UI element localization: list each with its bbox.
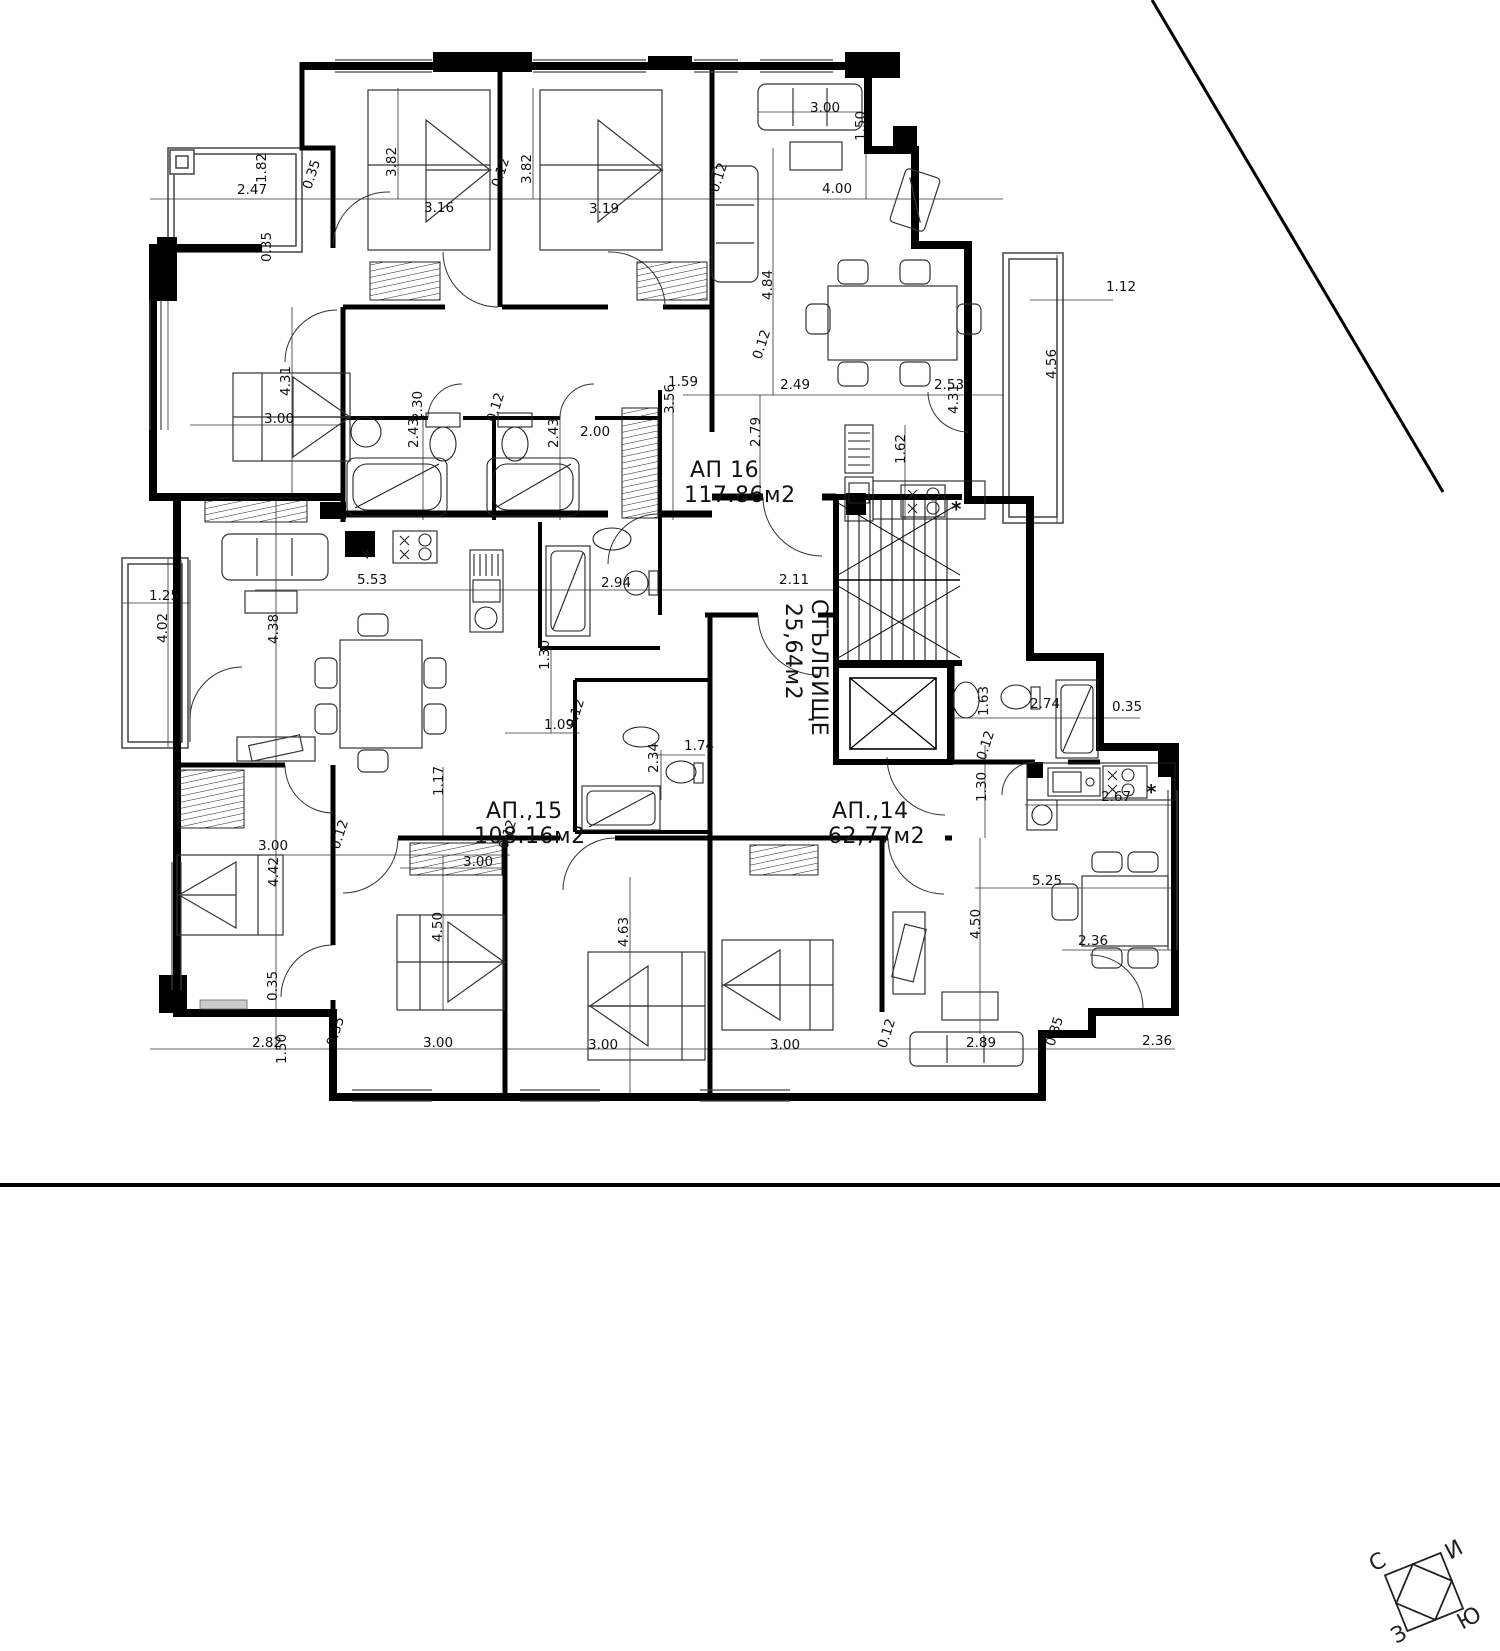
dining-table-6 <box>806 260 981 386</box>
comp-label: Ю <box>1453 1602 1486 1635</box>
dim-label: 0.12 <box>564 697 589 731</box>
dim-label: 3.00 <box>423 1035 453 1051</box>
dim-label: 4.02 <box>155 613 171 643</box>
bed <box>722 940 833 1030</box>
sym-label: * <box>1146 780 1157 804</box>
dim-label: 2.43 <box>406 418 422 448</box>
toilet <box>426 413 460 461</box>
dim-label: 1.74 <box>684 738 714 754</box>
dim-label: 2.36 <box>1078 933 1108 949</box>
sym-label: * <box>951 497 962 521</box>
compass-rose <box>1385 1553 1463 1631</box>
dim-label: 1.82 <box>254 153 270 183</box>
bed <box>540 90 662 250</box>
dim-label: 4.56 <box>1044 349 1060 379</box>
dim-label: 4.50 <box>968 909 984 939</box>
floor-plan-canvas: АП 16117.86м2АП.,15108.16м2АП.,1462,77м2… <box>0 0 1500 1651</box>
dim-label: 4.42 <box>266 857 282 887</box>
dim-label: 1.12 <box>1106 279 1136 295</box>
dim-label: 4.63 <box>616 917 632 947</box>
dim-label: 3.00 <box>264 411 294 427</box>
dim-label: 3.82 <box>519 154 535 184</box>
room-label: АП.,14 <box>832 799 909 824</box>
dim-label: 2.34 <box>646 743 662 773</box>
dim-label: 5.53 <box>357 572 387 588</box>
coffee-table <box>790 142 842 170</box>
dim-label: 2.89 <box>966 1035 996 1051</box>
bed <box>397 915 504 1010</box>
room-label: 25,64м2 <box>780 603 805 700</box>
coffee-table <box>245 591 297 613</box>
dim-label: 1.17 <box>431 766 447 796</box>
wall-columns <box>157 52 1175 1013</box>
dim-label: 0.12 <box>489 156 514 190</box>
dim-label: 0.35 <box>265 971 281 1001</box>
dim-label: 4.84 <box>760 270 776 300</box>
dim-label: 2.11 <box>779 572 809 588</box>
dim-label: 3.00 <box>588 1037 618 1053</box>
dining-table-4 <box>1052 852 1168 968</box>
tv-unit <box>892 912 926 994</box>
dim-label: 2.49 <box>780 377 810 393</box>
shower <box>582 786 660 830</box>
room-label: АП 16 <box>690 458 759 483</box>
comp-label: И <box>1441 1535 1467 1565</box>
bathtub <box>487 458 579 516</box>
dim-label: 5.25 <box>1032 873 1062 889</box>
dim-label: 3.56 <box>662 384 678 414</box>
dim-label: 2.36 <box>1142 1033 1172 1049</box>
dim-label: 1.25 <box>149 588 179 604</box>
sofa <box>222 534 328 580</box>
dim-label: 0.35 <box>324 1015 349 1049</box>
dim-label: 0.12 <box>974 729 999 763</box>
floor-plan-page: АП 16117.86м2АП.,15108.16м2АП.,1462,77м2… <box>0 0 1500 1651</box>
sym-label: * <box>362 545 373 569</box>
room-label: СТЪЛБИЩЕ <box>806 599 831 736</box>
toilet <box>498 413 532 461</box>
room-label: 117.86м2 <box>684 483 796 508</box>
sink <box>593 528 631 550</box>
dim-label: 1.63 <box>976 686 992 716</box>
dim-label: 2.79 <box>748 417 764 447</box>
room-label: 108.16м2 <box>474 824 586 849</box>
dining-table-6 <box>315 614 446 772</box>
dim-label: 2.67 <box>1101 789 1131 805</box>
dim-label: 2.47 <box>237 182 267 198</box>
shower <box>1056 680 1098 758</box>
site-boundary-line <box>1152 0 1443 492</box>
room-label: 62,77м2 <box>828 824 925 849</box>
dim-label: 4.31 <box>946 384 962 414</box>
dim-label: 2.43 <box>546 418 562 448</box>
dim-label: 0.12 <box>750 328 775 362</box>
dim-label: 0.12 <box>875 1017 900 1051</box>
bathtub <box>347 458 447 516</box>
dim-label: 2.74 <box>1030 696 1060 712</box>
dim-label: 2.94 <box>601 575 631 591</box>
dim-label: 3.16 <box>424 200 454 216</box>
dim-label: 1.30 <box>974 772 990 802</box>
dim-label: 3.19 <box>589 201 619 217</box>
staircase <box>838 499 960 661</box>
dim-label: 3.82 <box>384 147 400 177</box>
elevator <box>836 665 950 762</box>
dim-label: 0.35 <box>1112 699 1142 715</box>
toilet <box>666 761 703 783</box>
dim-label: 0.35 <box>300 158 325 192</box>
coffee-table <box>942 992 998 1020</box>
dim-label: 3.00 <box>258 838 288 854</box>
dim-label: 2.30 <box>410 391 426 421</box>
sink <box>351 417 381 447</box>
shower <box>546 546 590 636</box>
comp-label: З <box>1387 1621 1411 1650</box>
dim-label: 4.50 <box>430 912 446 942</box>
dim-label: 3.00 <box>770 1037 800 1053</box>
dim-label: 1.50 <box>274 1034 290 1064</box>
dim-label: 4.00 <box>822 181 852 197</box>
dim-label: 1.30 <box>537 640 553 670</box>
window-sill <box>200 1000 247 1009</box>
dim-label: 0.35 <box>259 232 275 262</box>
dim-label: 4.38 <box>266 614 282 644</box>
room-label: АП.,15 <box>486 799 563 824</box>
dim-label: 3.00 <box>463 854 493 870</box>
comp-label: С <box>1365 1548 1390 1577</box>
kitchen-ap15 <box>393 531 503 632</box>
dim-label: 3.00 <box>810 100 840 116</box>
dim-label: 1.62 <box>893 434 909 464</box>
dim-label: 1.50 <box>853 111 869 141</box>
dim-label: 2.00 <box>580 424 610 440</box>
dim-label: 4.31 <box>278 366 294 396</box>
